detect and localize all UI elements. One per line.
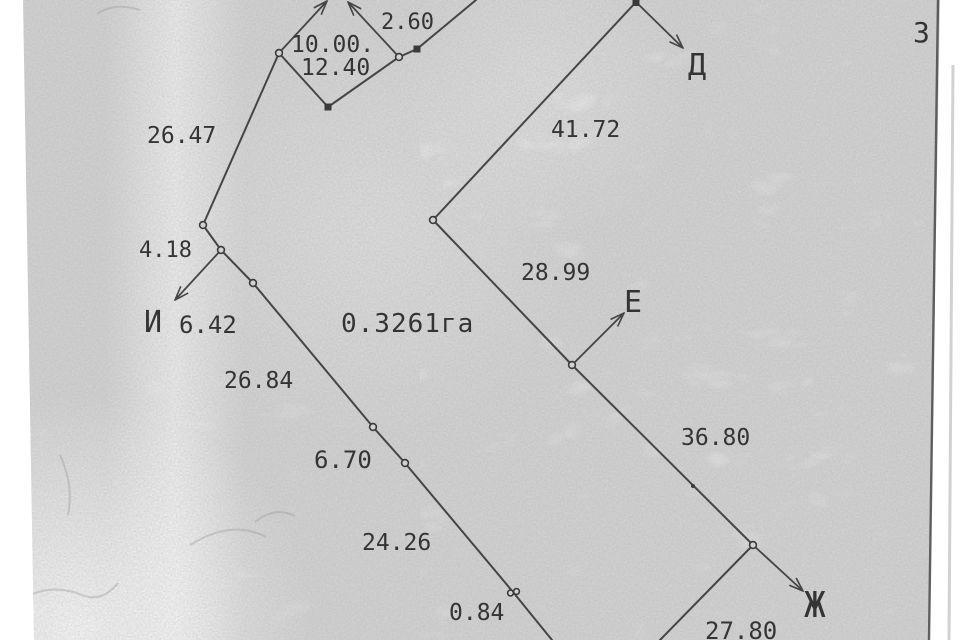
point-letter-e: Е [624, 285, 642, 320]
scan-fabric-texture [420, 0, 960, 640]
measurement-41-72: 41.72 [551, 117, 620, 143]
measurement-28-99: 28.99 [521, 260, 590, 286]
scanned-survey-plan: 2.60 10.00. 12.40 26.47 41.72 4.18 6.42 … [0, 0, 960, 640]
measurement-26-84: 26.84 [224, 368, 293, 394]
survey-plan-drawing: 2.60 10.00. 12.40 26.47 41.72 4.18 6.42 … [0, 0, 960, 640]
measurement-27-80: 27.80 [705, 617, 777, 640]
parcel-area-label: 0.3261га [341, 309, 474, 339]
page-shadow-line [949, 65, 953, 640]
point-letter-d: Д [688, 48, 706, 83]
measurement-2-60: 2.60 [381, 10, 434, 35]
point-letter-i: И [144, 305, 162, 340]
point-letter-zh: Ж [804, 585, 826, 626]
measurement-6-42: 6.42 [179, 311, 237, 339]
measurement-36-80: 36.80 [681, 425, 750, 451]
measurement-4-18: 4.18 [139, 238, 192, 263]
measurement-24-26: 24.26 [362, 530, 431, 556]
point-letter-z: З [913, 16, 930, 49]
measurement-0-84: 0.84 [449, 600, 504, 626]
measurement-12-40: 12.40 [301, 55, 370, 81]
measurement-26-47: 26.47 [147, 123, 216, 149]
measurement-6-70: 6.70 [314, 446, 372, 474]
